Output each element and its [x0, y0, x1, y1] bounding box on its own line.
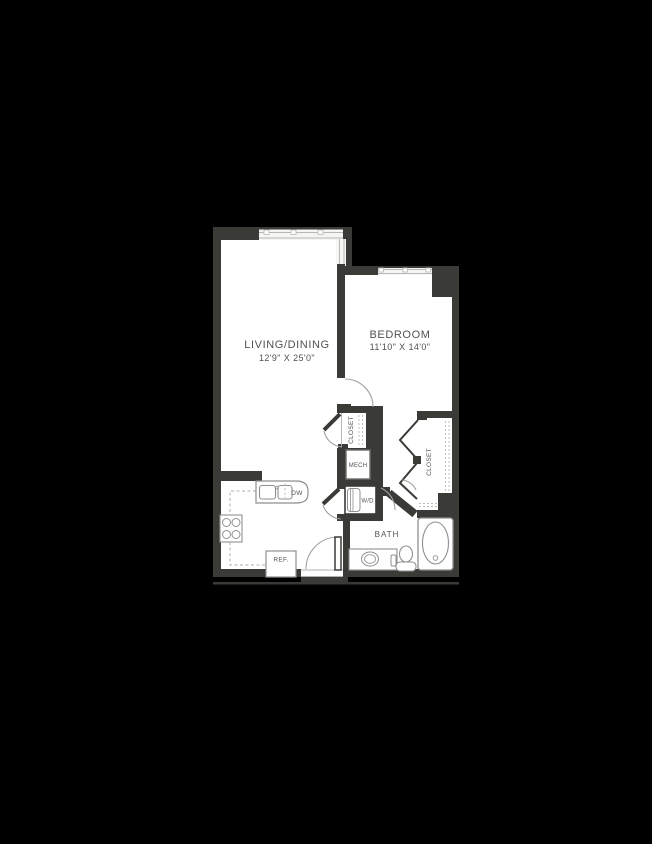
vanity-sink-icon — [349, 549, 397, 570]
bathtub-icon — [418, 518, 453, 570]
top-wall-living — [213, 227, 259, 240]
bedroom-top-right-corner — [432, 266, 459, 297]
bedroom-closet-bottom-wall — [417, 510, 438, 518]
mech-closet: MECH — [346, 450, 370, 479]
stove-icon — [220, 515, 242, 542]
window-mullion-icon — [264, 230, 269, 235]
refrigerator-icon: REF. — [266, 551, 296, 577]
floor-plan: DW REF. CLOSET — [0, 0, 652, 844]
entry-threshold — [301, 577, 348, 582]
entry-door-leaf — [335, 537, 341, 570]
washer-icon — [348, 489, 361, 512]
exterior-notch — [352, 227, 459, 266]
hall-closet-side-wall — [366, 413, 383, 448]
bifold-pivot — [413, 456, 421, 464]
window-mullion-icon — [403, 268, 408, 272]
window-mullion-icon — [318, 230, 323, 235]
bedroom-closet-label: CLOSET — [426, 448, 433, 476]
dishwasher-label: DW — [291, 490, 303, 497]
living-window-outer-line — [259, 227, 343, 230]
kitchen-sink-icon — [260, 486, 293, 500]
window-mullion-icon — [426, 268, 431, 272]
bedroom-window — [378, 266, 432, 275]
window-mullion-icon — [291, 230, 296, 235]
washer-dryer-label: W/D — [361, 499, 374, 505]
exterior-edge-line — [213, 582, 459, 585]
hall-closet-top-wall — [337, 406, 383, 413]
refrigerator-label: REF. — [273, 557, 288, 564]
laundry-door-opening — [337, 489, 345, 514]
bedroom-closet-bottom-right-wall — [438, 493, 457, 518]
bedroom-top-wall-left — [345, 266, 378, 275]
bath-label: BATH — [375, 530, 400, 539]
screenshot-canvas: DW REF. CLOSET — [0, 0, 652, 844]
mech-label: MECH — [349, 463, 367, 469]
window-mullion-icon — [379, 268, 384, 272]
living-bedroom-divider-wall — [337, 264, 345, 378]
living-room-label: LIVING/DINING — [244, 339, 329, 351]
hall-closet-label: CLOSET — [348, 416, 355, 444]
living-room-dimensions: 12'9" X 25'0" — [259, 353, 315, 363]
bedroom-label: BEDROOM — [369, 329, 430, 341]
bedroom-dimensions: 11'10" X 14'0" — [370, 342, 431, 352]
bedroom-closet-top-stub — [417, 411, 427, 420]
kitchen-half-wall — [213, 471, 262, 481]
